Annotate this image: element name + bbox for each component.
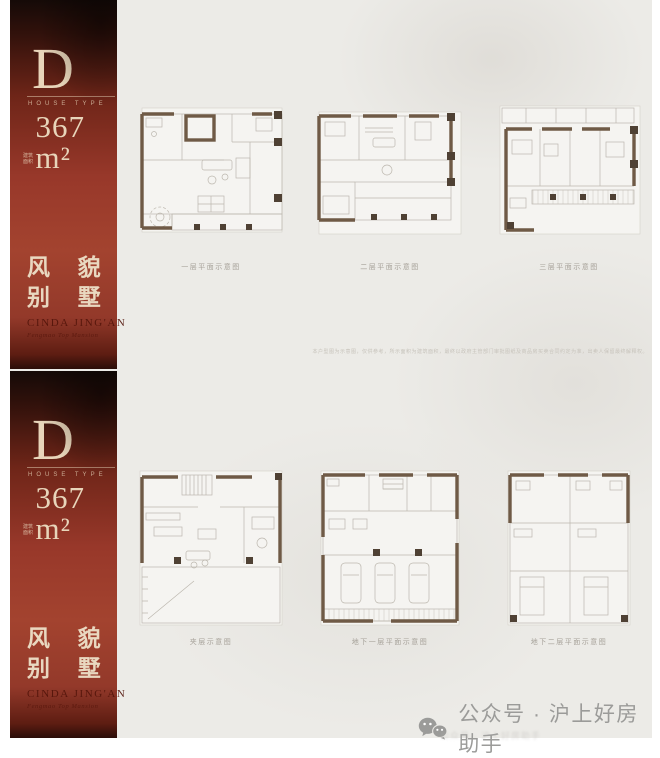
floor-plan-basement1-label: 地下一层平面示意图	[352, 637, 429, 647]
floor-plan-level2-label: 二层平面示意图	[360, 262, 420, 272]
house-type-letter: D	[32, 411, 74, 469]
villa-title: 风 貌 别 墅	[27, 253, 112, 313]
disclaimer-text: 本户型图为示意图，仅供参考，所示面积为建筑面积，最终以政府主管部门审批图纸及商品…	[140, 348, 648, 355]
floor-plan-row-upper: 一层平面示意图	[128, 98, 652, 274]
floor-plan-basement1-drawing	[307, 459, 473, 631]
floor-plan-row-lower: 夹层示意图	[128, 459, 652, 649]
watermark-footer: 公众号 · 沪上好房助手	[417, 698, 660, 758]
villa-title-line1: 风 貌	[27, 253, 112, 283]
floor-plan-basement1: 地下一层平面示意图	[307, 459, 473, 649]
floor-plan-level1-label: 一层平面示意图	[181, 262, 241, 272]
floor-plan-level3-drawing	[486, 98, 652, 248]
villa-title-line1: 风 貌	[27, 624, 112, 654]
poster-canvas: D HOUSE TYPE 建筑面积 367 m² 风 貌 别 墅 CINDA J…	[10, 0, 652, 738]
area-group: 建筑面积 367 m²	[23, 482, 117, 544]
floor-plan-mezzanine-label: 夹层示意图	[190, 637, 233, 647]
area-prefix-label: 建筑面积	[23, 154, 33, 166]
villa-title-line2: 别 墅	[27, 654, 112, 684]
sidebar-house-type: D HOUSE TYPE 建筑面积 367 m² 风 貌 别 墅 CINDA J…	[10, 371, 117, 738]
floor-plan-mezzanine-drawing	[128, 459, 294, 631]
floor-plan-level1-drawing	[128, 98, 294, 248]
divider-line	[27, 467, 115, 468]
house-type-caption: HOUSE TYPE	[28, 472, 107, 478]
floor-plan-level2: 二层平面示意图	[307, 98, 473, 274]
sidebar-house-type: D HOUSE TYPE 建筑面积 367 m² 风 貌 别 墅 CINDA J…	[10, 0, 117, 369]
panel-floors-below: D HOUSE TYPE 建筑面积 367 m² 风 貌 别 墅 CINDA J…	[10, 371, 652, 742]
floor-plan-level1: 一层平面示意图	[128, 98, 294, 274]
floor-plan-basement2-drawing	[486, 459, 652, 631]
watermark-ghost-text: 公众号 · 沪上好房助手	[440, 729, 541, 742]
house-type-caption: HOUSE TYPE	[28, 101, 107, 107]
watermark-text: 公众号 · 沪上好房助手	[458, 698, 660, 758]
area-group: 建筑面积 367 m²	[23, 111, 117, 173]
area-value: 367 m²	[35, 482, 117, 544]
brand-name: CINDA JING'AN	[27, 317, 126, 329]
floor-plan-basement2: 地下二层平面示意图	[486, 459, 652, 649]
villa-title-line2: 别 墅	[27, 283, 112, 313]
brand-tagline: Fengmao Top Mansion	[27, 332, 98, 339]
floor-plan-level3: 三层平面示意图	[486, 98, 652, 274]
villa-title: 风 貌 别 墅	[27, 624, 112, 684]
floor-plan-level2-drawing	[307, 98, 473, 248]
divider-line	[27, 96, 115, 97]
house-type-letter: D	[32, 40, 74, 98]
floor-plan-level3-label: 三层平面示意图	[539, 262, 599, 272]
brand-tagline: Fengmao Top Mansion	[27, 703, 98, 710]
floor-plan-basement2-label: 地下二层平面示意图	[531, 637, 608, 647]
floor-plan-mezzanine: 夹层示意图	[128, 459, 294, 649]
area-prefix-label: 建筑面积	[23, 525, 33, 537]
panel-floors-above: D HOUSE TYPE 建筑面积 367 m² 风 貌 别 墅 CINDA J…	[10, 0, 652, 371]
area-value: 367 m²	[35, 111, 117, 173]
brand-name: CINDA JING'AN	[27, 688, 126, 700]
